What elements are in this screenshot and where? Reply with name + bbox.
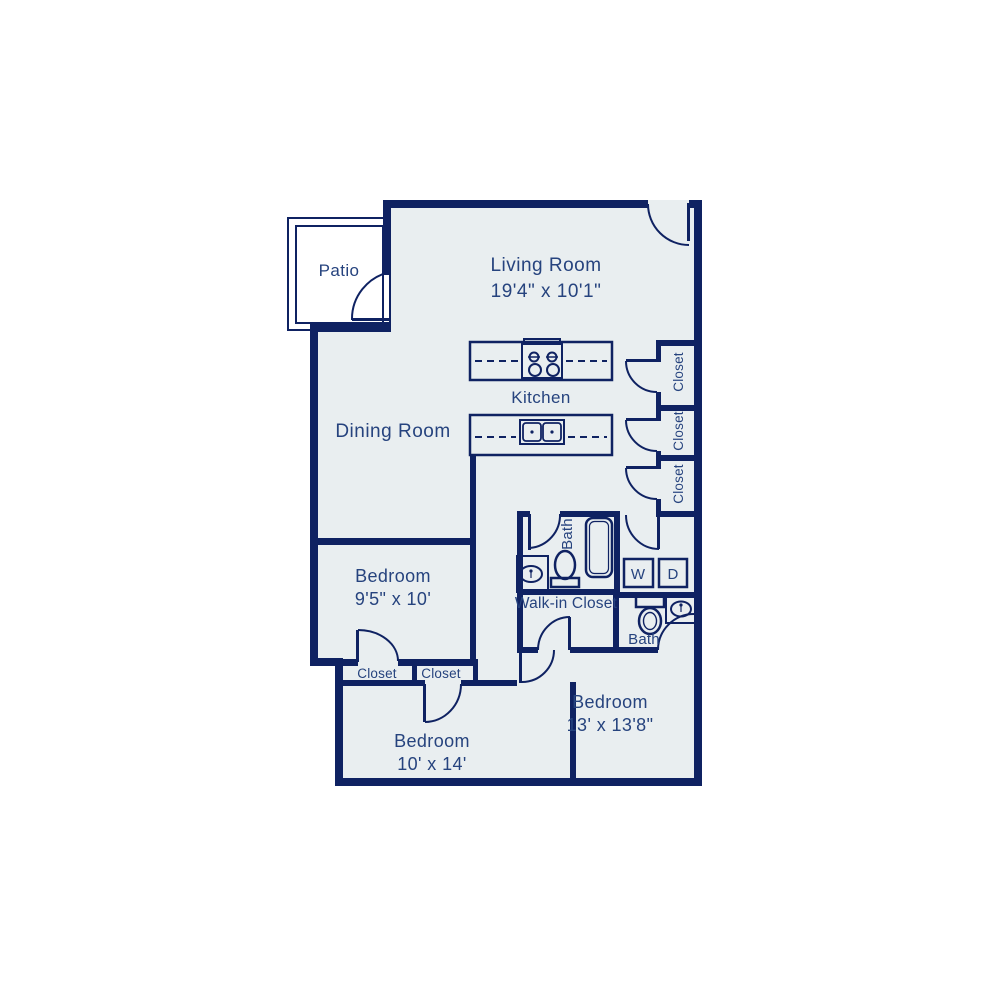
bedroom1-closet-label: Closet bbox=[357, 666, 397, 681]
laundry-door-leaf bbox=[657, 515, 660, 549]
hall-closet-bottom-label: Closet bbox=[671, 464, 686, 504]
bedroom2-dims: 10' x 14' bbox=[397, 754, 467, 774]
kitchen-label: Kitchen bbox=[511, 388, 571, 407]
hallcloset3-door-leaf bbox=[626, 466, 658, 469]
bedroom2-closet-label: Closet bbox=[421, 666, 461, 681]
wall-hallcloset-div2 bbox=[656, 455, 702, 461]
hallcloset2-door-leaf bbox=[626, 418, 658, 421]
kitchen-sink-drain-left bbox=[530, 430, 533, 433]
dining-room-label: Dining Room bbox=[335, 421, 450, 442]
wall-bottom bbox=[335, 778, 702, 786]
wall-top-left bbox=[388, 200, 648, 208]
wall-closets-bottom-right bbox=[461, 680, 517, 686]
wall-bedroom1-bottom-right bbox=[398, 659, 478, 666]
washer-label: W bbox=[631, 566, 646, 583]
wall-corridor bbox=[470, 455, 476, 665]
wall-patio-right bbox=[383, 200, 391, 275]
corridor-door-leaf bbox=[519, 650, 522, 683]
patio-door-leaf bbox=[352, 318, 390, 321]
bedroom1-dims: 9'5" x 10' bbox=[355, 589, 431, 609]
bedroom1-label: Bedroom bbox=[355, 566, 431, 586]
bedroom2-closet-door-leaf bbox=[423, 684, 426, 722]
dryer-label: D bbox=[667, 566, 678, 583]
entry-door-leaf bbox=[687, 203, 690, 241]
hall-closet-middle-label: Closet bbox=[671, 411, 686, 451]
wall-hallcloset-spine2 bbox=[656, 392, 661, 421]
bedroom3-dims: 13' x 13'8" bbox=[567, 715, 654, 735]
wall-bath1-top-right bbox=[560, 511, 620, 517]
living-room-dims: 19'4" x 10'1" bbox=[491, 281, 602, 302]
living-room-label: Living Room bbox=[490, 255, 601, 276]
wall-bath1-right bbox=[614, 511, 620, 595]
wall-hallcloset-div1 bbox=[656, 405, 702, 411]
wall-hallcloset-top bbox=[656, 340, 702, 346]
walkin-closet-door-leaf bbox=[568, 617, 571, 650]
walkin-closet-label: Walk-in Closet bbox=[515, 595, 618, 612]
bedroom2-label: Bedroom bbox=[394, 731, 470, 751]
floor-plan: Patio Living Room 19'4" x 10'1" Dining R… bbox=[0, 0, 1000, 1000]
wall-right bbox=[694, 200, 702, 786]
wall-bedroom1-bottom-left bbox=[310, 659, 358, 666]
hallcloset1-door-leaf bbox=[626, 359, 658, 362]
bath1-door-leaf bbox=[528, 514, 531, 550]
kitchen-sink-drain-right bbox=[550, 430, 553, 433]
floor-plan-page: Patio Living Room 19'4" x 10'1" Dining R… bbox=[0, 0, 1000, 1000]
bedroom1-door-leaf bbox=[356, 630, 359, 662]
wall-hallcloset-spine4 bbox=[656, 499, 661, 517]
wall-hallcloset-spine1 bbox=[656, 340, 661, 362]
bath1-label: Bath bbox=[559, 518, 576, 550]
wall-bedroom1-top bbox=[310, 538, 476, 545]
wall-left-upper bbox=[310, 322, 318, 666]
wall-walkin-bottom-right bbox=[570, 647, 615, 653]
wall-left-lower bbox=[335, 658, 343, 786]
bath2-label: Bath bbox=[628, 631, 660, 648]
hall-closet-top-label: Closet bbox=[671, 352, 686, 392]
patio-label: Patio bbox=[319, 261, 360, 280]
bedroom3-label: Bedroom bbox=[572, 692, 648, 712]
wall-patio-bottom bbox=[310, 322, 391, 332]
wall-hallcloset-bottom bbox=[656, 511, 702, 517]
wall-bath2-bottom-right bbox=[694, 647, 702, 653]
